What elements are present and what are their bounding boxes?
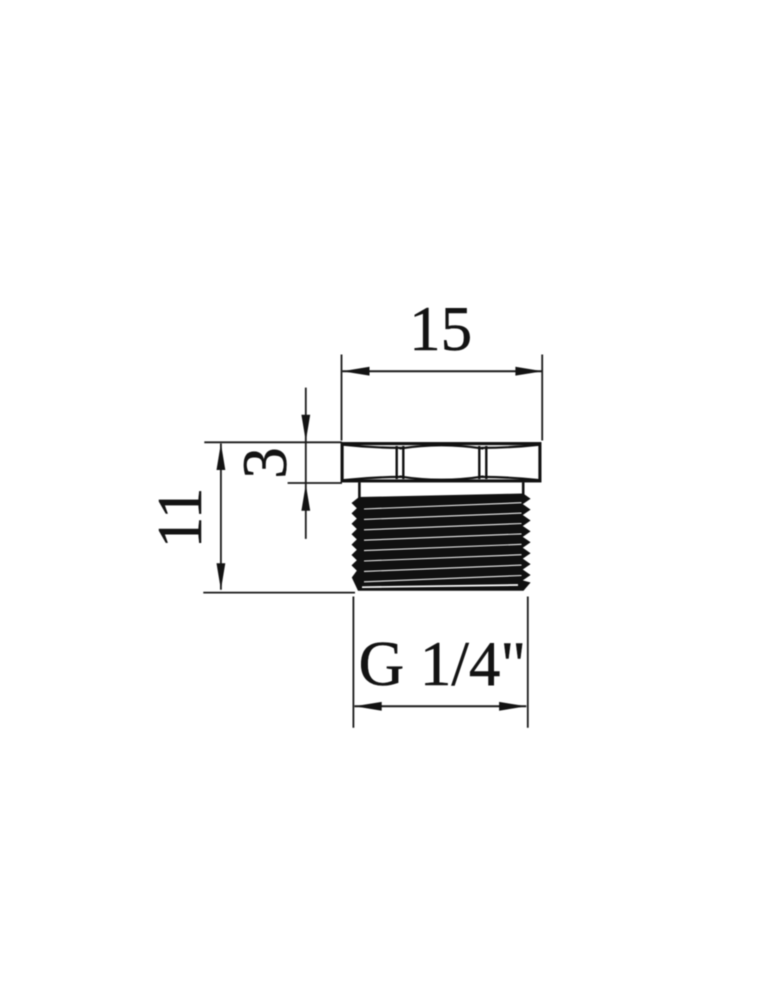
- svg-text:3: 3: [230, 447, 300, 479]
- svg-text:11: 11: [145, 488, 215, 549]
- svg-text:G 1/4": G 1/4": [359, 629, 526, 699]
- svg-text:15: 15: [409, 294, 472, 364]
